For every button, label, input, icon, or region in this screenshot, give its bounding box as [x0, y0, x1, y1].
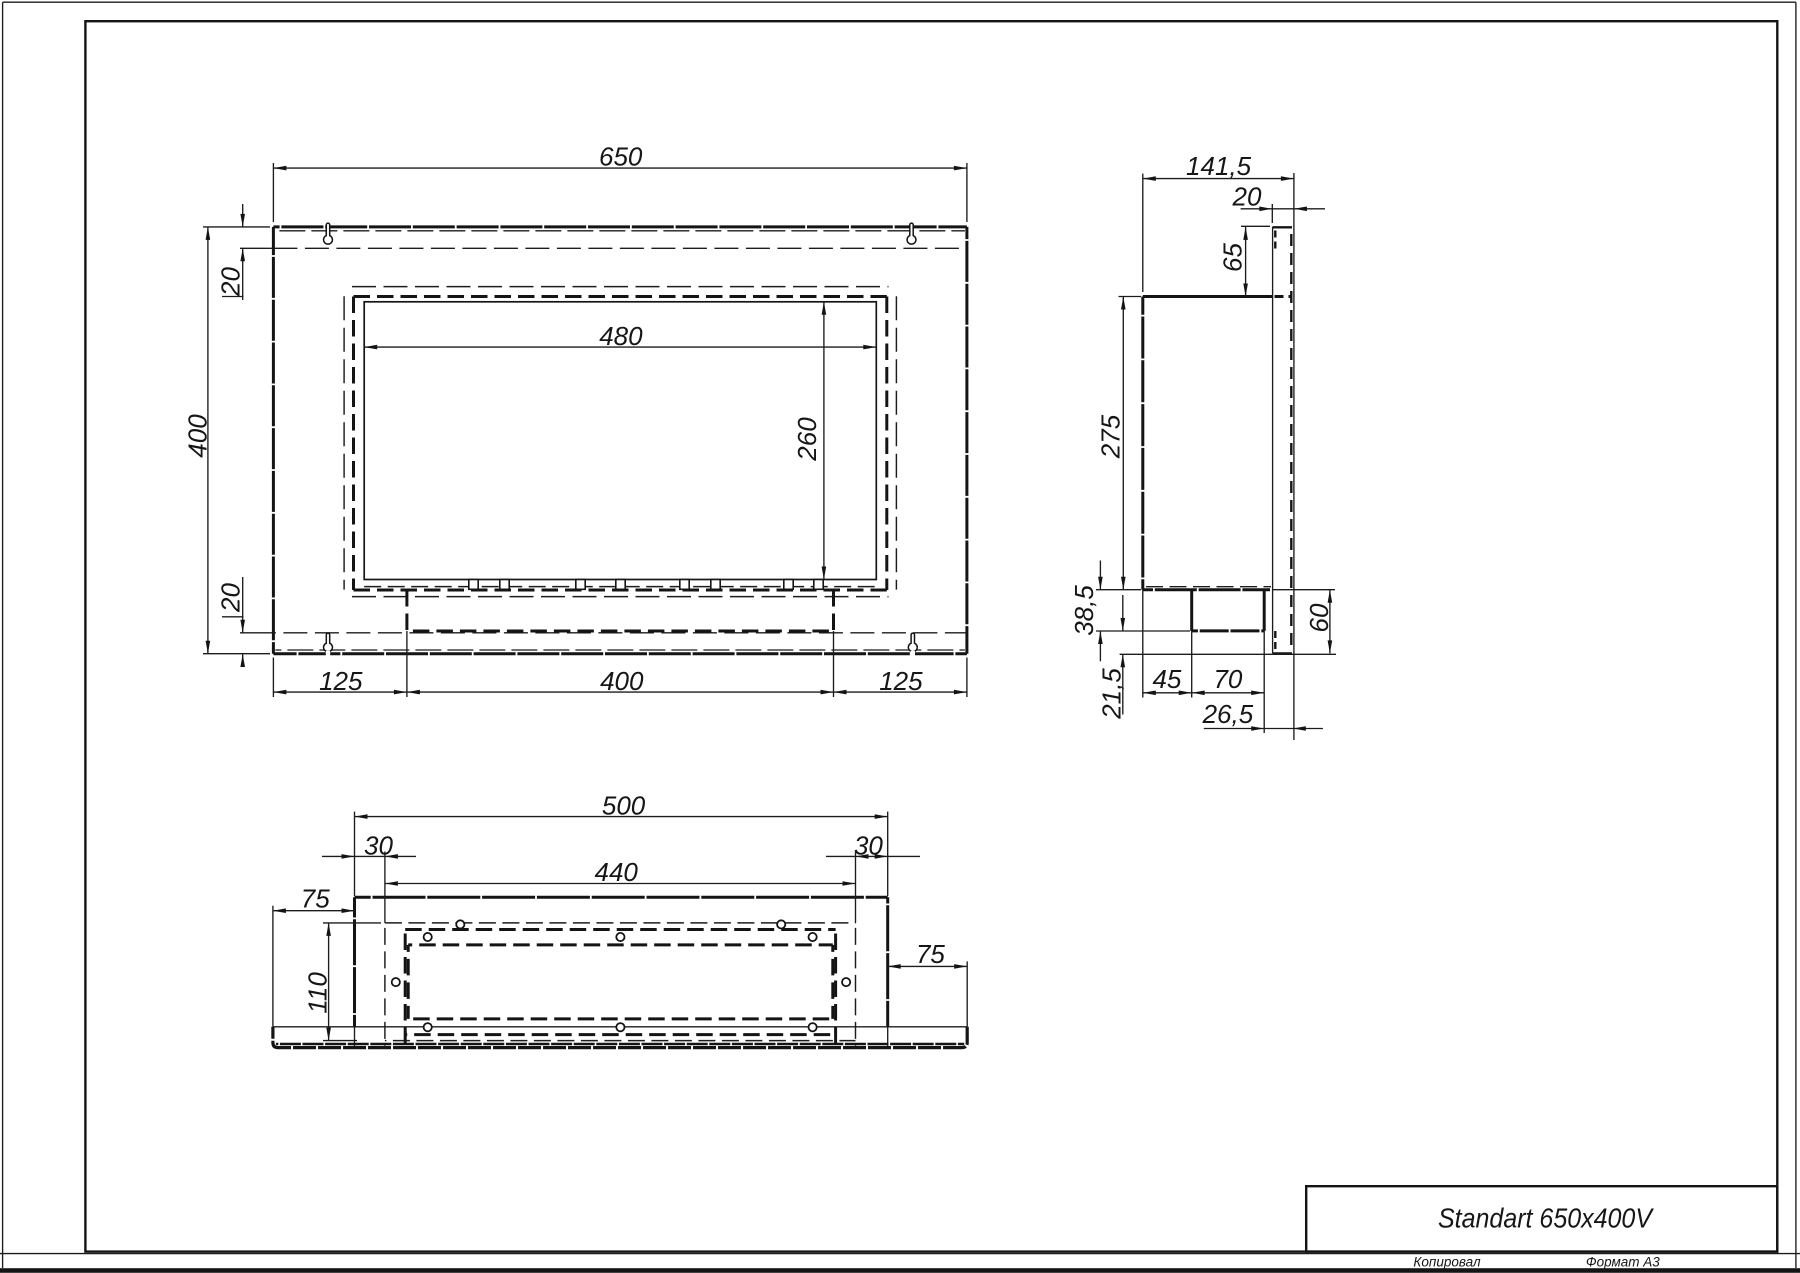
- svg-text:500: 500: [602, 790, 646, 820]
- svg-text:275: 275: [1096, 414, 1126, 459]
- svg-text:260: 260: [792, 417, 822, 462]
- svg-text:480: 480: [599, 321, 643, 351]
- svg-text:400: 400: [183, 414, 213, 458]
- svg-text:60: 60: [1304, 603, 1334, 632]
- svg-text:650: 650: [599, 142, 643, 172]
- svg-text:110: 110: [303, 972, 333, 1014]
- svg-text:400: 400: [600, 666, 644, 696]
- svg-text:30: 30: [364, 830, 393, 860]
- svg-text:Формат А3: Формат А3: [1586, 1254, 1660, 1269]
- svg-text:75: 75: [916, 939, 945, 969]
- svg-text:45: 45: [1152, 664, 1181, 694]
- svg-text:38,5: 38,5: [1069, 585, 1099, 636]
- svg-text:Standart 650x400V: Standart 650x400V: [1438, 1203, 1654, 1234]
- svg-text:Копировал: Копировал: [1413, 1254, 1481, 1269]
- svg-text:125: 125: [879, 666, 923, 696]
- svg-text:440: 440: [595, 857, 639, 887]
- svg-text:65: 65: [1218, 243, 1248, 272]
- svg-text:20: 20: [1232, 182, 1262, 212]
- svg-text:75: 75: [301, 884, 330, 914]
- svg-text:70: 70: [1213, 664, 1242, 694]
- svg-text:20: 20: [216, 583, 246, 613]
- svg-text:30: 30: [854, 830, 883, 860]
- svg-text:21,5: 21,5: [1096, 668, 1126, 720]
- svg-text:26,5: 26,5: [1202, 699, 1254, 729]
- svg-text:20: 20: [216, 267, 246, 297]
- svg-text:141,5: 141,5: [1186, 151, 1252, 181]
- svg-text:125: 125: [319, 666, 363, 696]
